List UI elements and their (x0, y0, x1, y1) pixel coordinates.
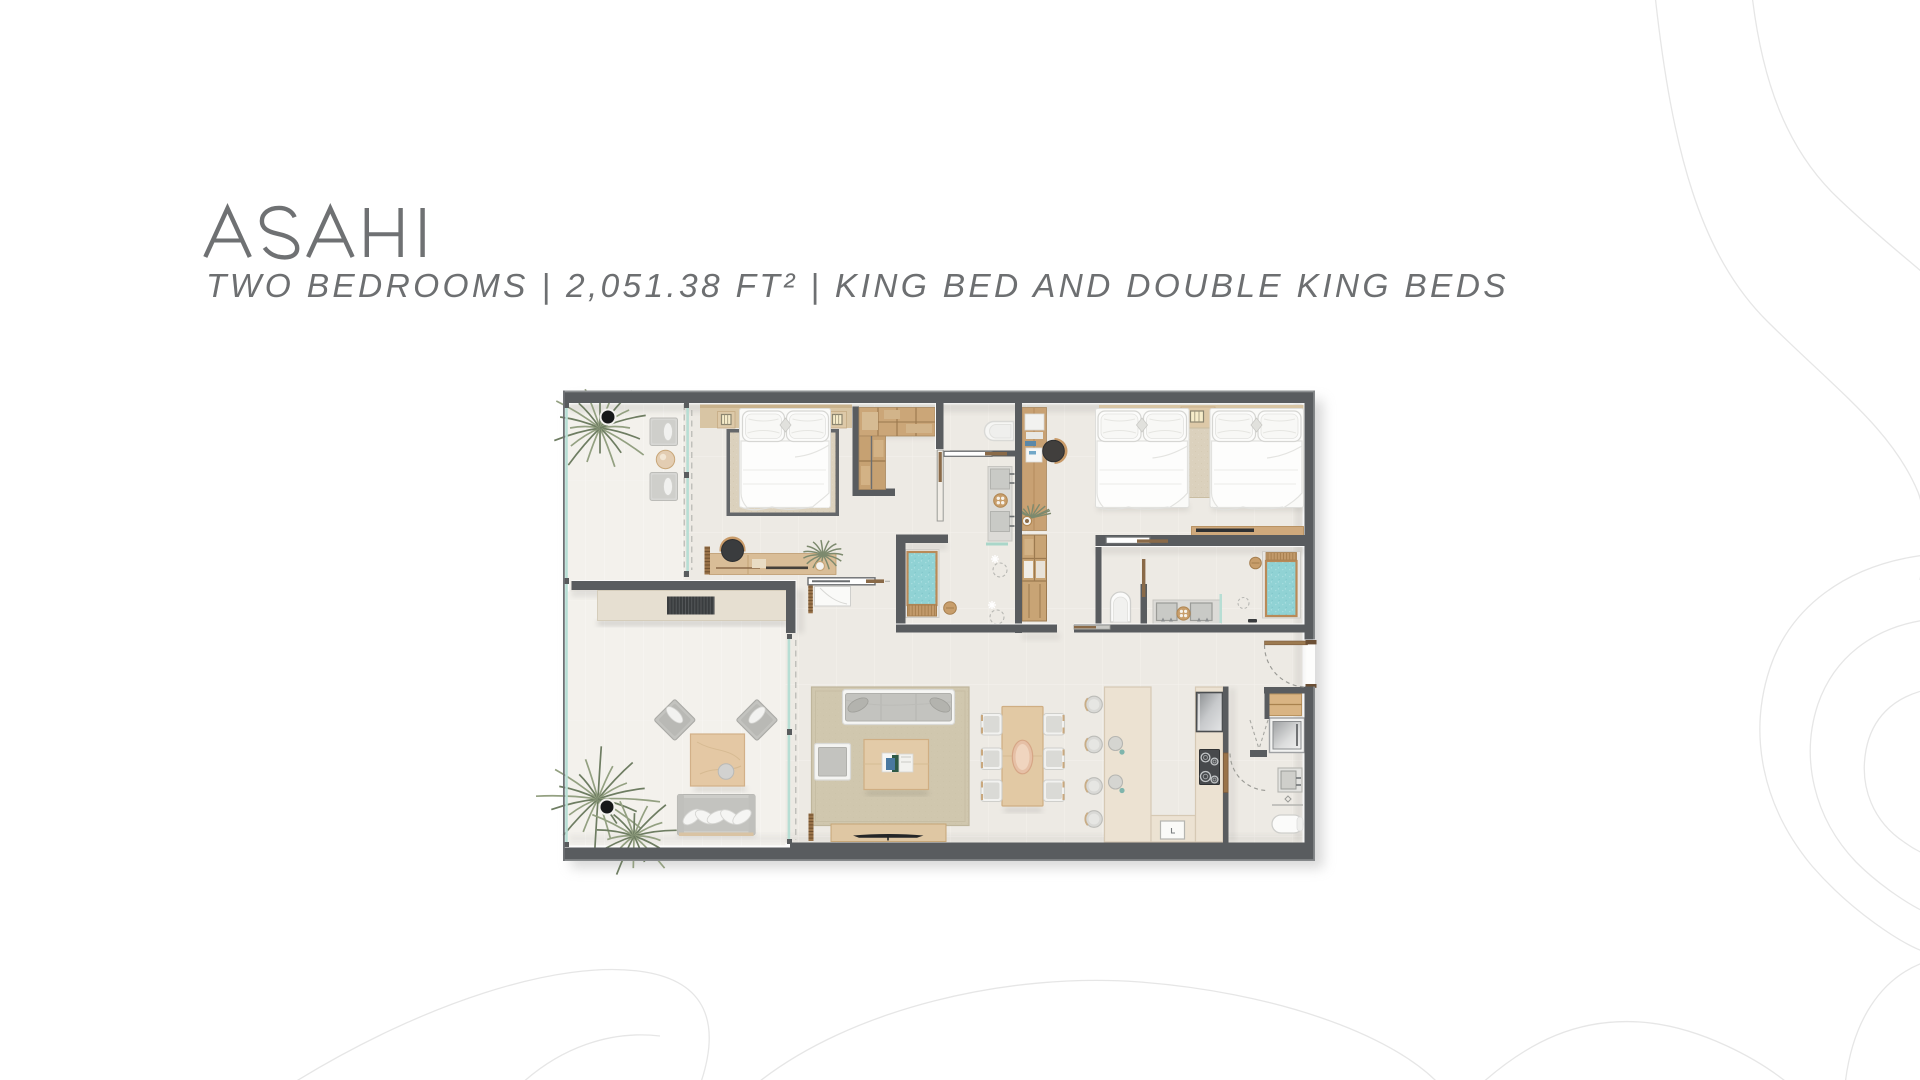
svg-text:TWO BEDROOMS | 2,051.38 FT² |: TWO BEDROOMS | 2,051.38 FT² | KING BED A… (206, 268, 1509, 305)
